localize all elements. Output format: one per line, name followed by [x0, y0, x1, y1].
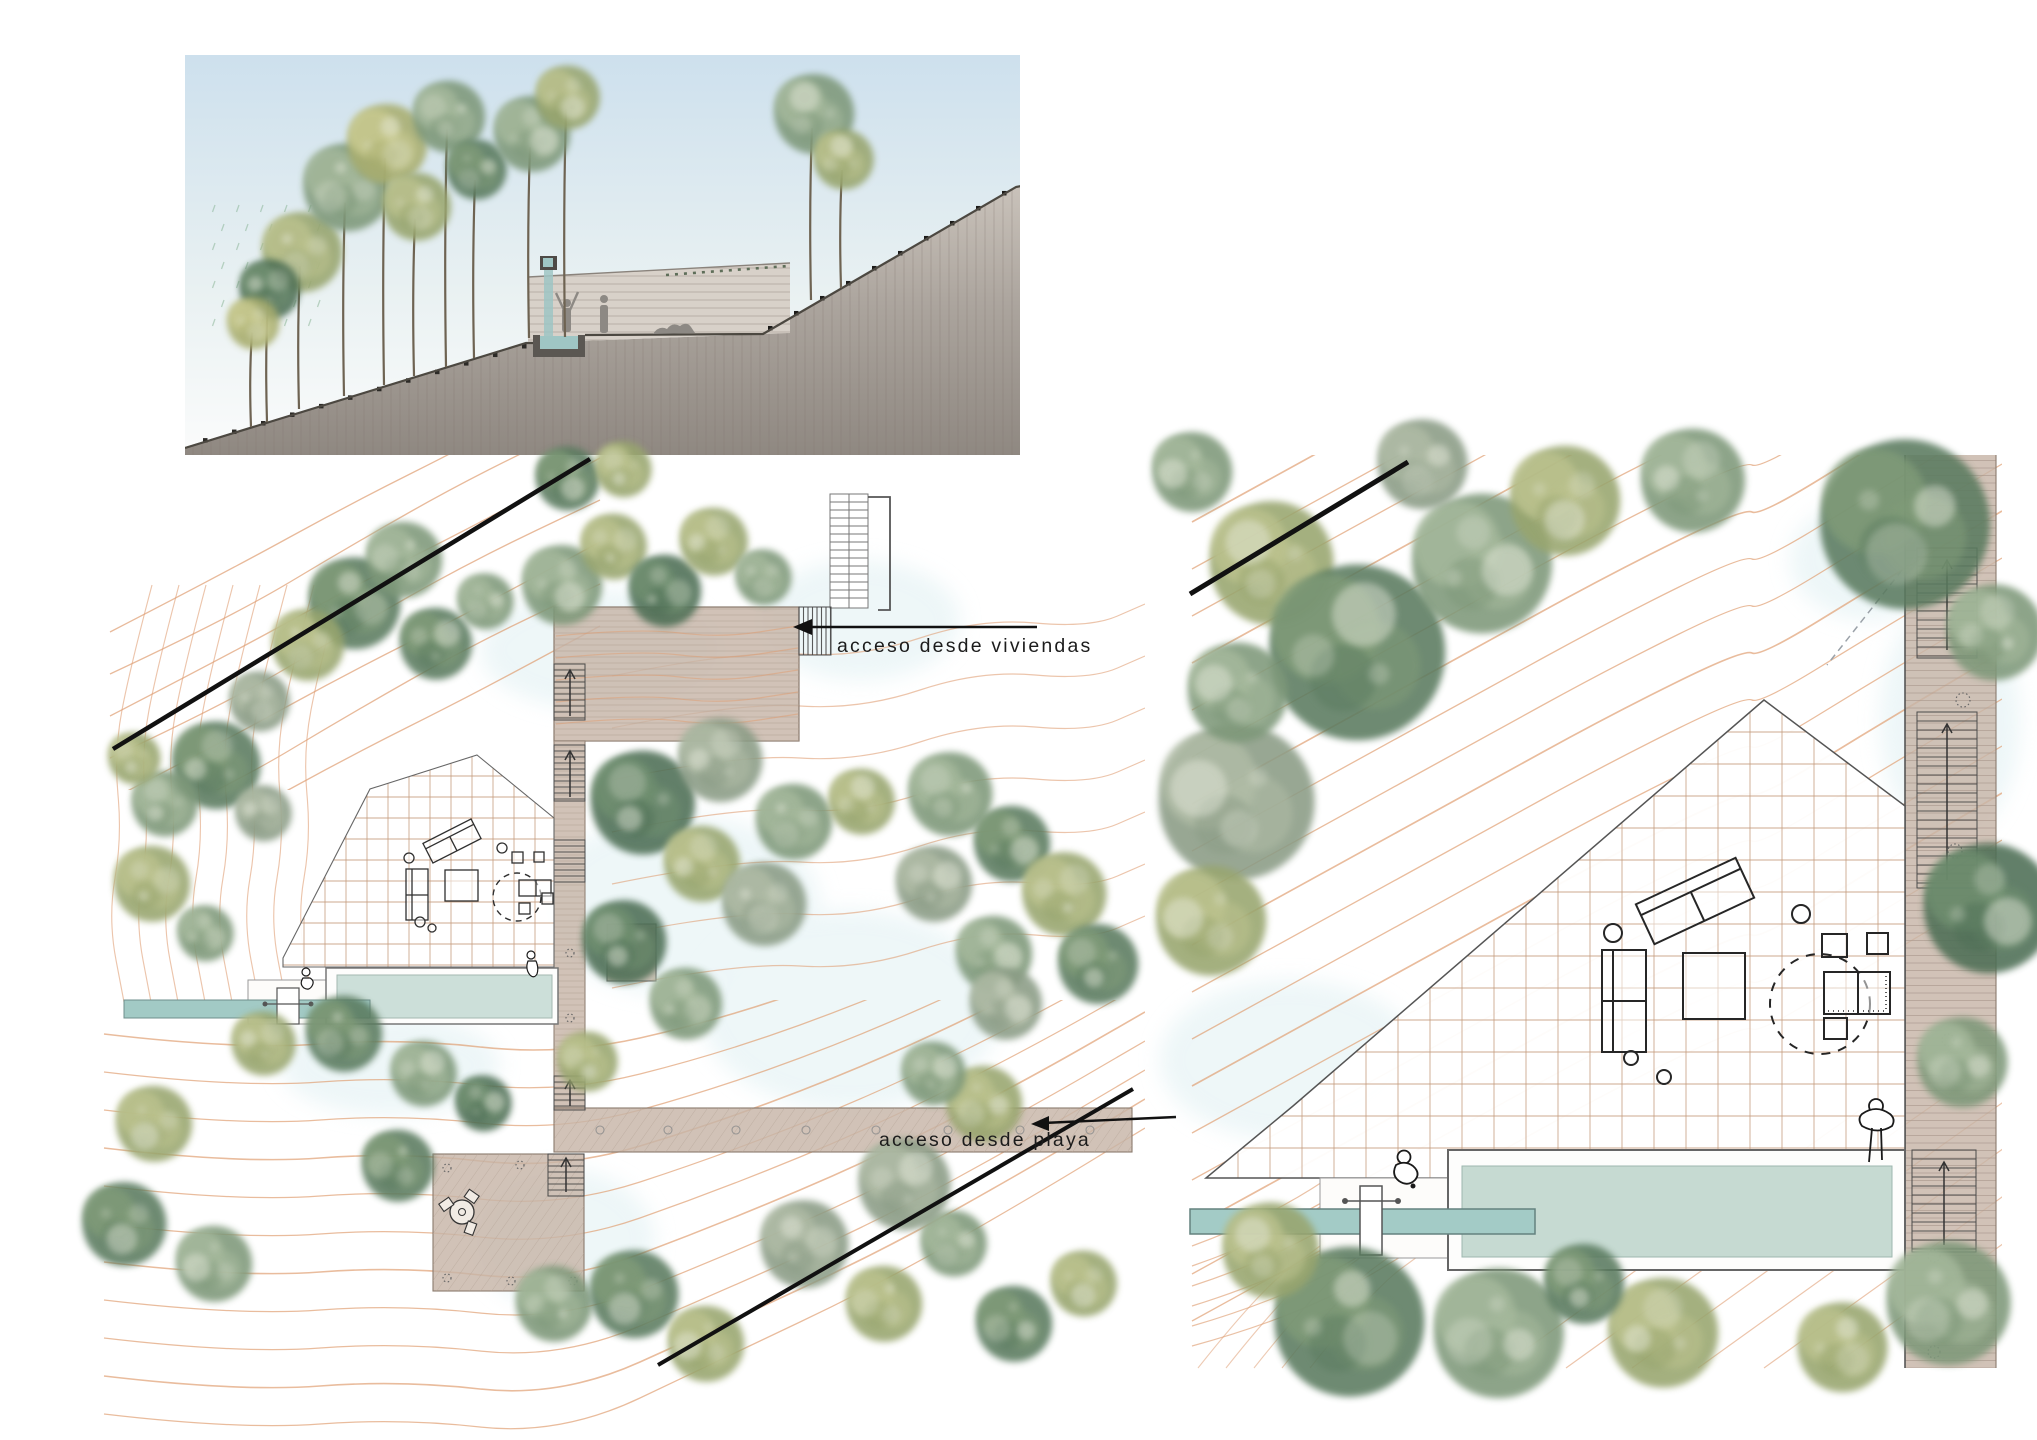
boundary-line-upper — [113, 459, 590, 749]
tree — [383, 173, 451, 241]
tree — [109, 732, 161, 784]
tree — [1152, 432, 1232, 512]
tree — [458, 573, 514, 629]
tree — [896, 846, 972, 922]
tree — [400, 608, 472, 680]
tree — [1223, 1202, 1319, 1298]
chair — [519, 903, 530, 914]
chair — [512, 852, 523, 863]
chair — [534, 852, 544, 862]
tree — [756, 784, 832, 860]
tree — [650, 968, 722, 1040]
side-table — [428, 924, 436, 932]
tree — [114, 846, 190, 922]
tree — [1023, 852, 1107, 936]
tree — [1641, 429, 1745, 533]
tree — [1378, 419, 1468, 509]
side-table — [1792, 905, 1810, 923]
tree — [306, 996, 382, 1072]
sofa-straight — [1602, 950, 1646, 1052]
tree — [176, 1226, 252, 1302]
person-crouching — [1398, 1151, 1411, 1164]
side-table — [497, 843, 507, 853]
tree — [1188, 643, 1288, 743]
tree — [583, 900, 667, 984]
tree — [232, 1012, 296, 1076]
label-access-viviendas: acceso desde viviendas — [837, 635, 1092, 657]
tree — [723, 862, 807, 946]
side-table — [1657, 1070, 1671, 1084]
tree — [859, 1138, 951, 1230]
tree — [829, 769, 895, 835]
side-table — [1604, 924, 1622, 942]
tree — [976, 1286, 1052, 1362]
site-plan-panel: acceso desde viviendas acceso desde play… — [83, 374, 1176, 1429]
tree — [1510, 446, 1620, 556]
tree — [736, 549, 792, 605]
tree — [1798, 1302, 1888, 1392]
tree — [516, 1266, 592, 1342]
side-table — [404, 853, 414, 863]
tree — [1544, 1244, 1624, 1324]
tree — [902, 1042, 966, 1106]
tree — [1159, 724, 1315, 880]
tree — [236, 785, 292, 841]
tree — [536, 447, 600, 511]
tree — [228, 297, 280, 349]
tree — [596, 441, 652, 497]
tree — [230, 672, 290, 732]
tree — [761, 1200, 849, 1288]
tree — [1051, 1251, 1117, 1317]
tree — [1434, 1268, 1564, 1398]
tree — [814, 130, 874, 190]
tree — [1608, 1278, 1718, 1388]
tree — [591, 1250, 679, 1338]
tree — [970, 968, 1042, 1040]
table-square — [1683, 953, 1745, 1019]
chair — [1867, 933, 1888, 954]
chair — [1824, 1018, 1847, 1039]
tree — [1887, 1241, 2011, 1365]
side-table — [415, 917, 425, 927]
tree — [391, 1041, 457, 1107]
tree — [1156, 866, 1266, 976]
tree — [178, 905, 234, 961]
site-drawing: acceso desde viviendas acceso desde play… — [0, 0, 2037, 1440]
site-plan-detail-panel — [1152, 88, 2037, 1398]
chair — [542, 893, 553, 904]
tree — [536, 66, 600, 130]
tree — [83, 1182, 167, 1266]
tree — [1918, 1017, 2008, 1107]
tree — [668, 1306, 744, 1382]
section-pool-water — [540, 336, 578, 349]
section-water-cascade — [544, 262, 553, 337]
tree — [846, 1266, 922, 1342]
table-square — [445, 870, 478, 901]
plaza-terrace-detail — [1206, 700, 1905, 1178]
tree — [1820, 439, 1990, 609]
tree — [116, 1086, 192, 1162]
presentation-sheet: acceso desde viviendas acceso desde play… — [0, 0, 2037, 1440]
sofa-straight — [406, 869, 428, 920]
section-panel — [185, 55, 1021, 455]
label-access-playa: acceso desde playa — [879, 1129, 1091, 1151]
tree — [558, 1032, 618, 1092]
tree — [1058, 924, 1138, 1004]
section-water-outlet-water — [543, 258, 553, 267]
tree — [362, 1130, 434, 1202]
side-table — [1624, 1051, 1638, 1065]
tree — [456, 1075, 512, 1131]
shower-fixture — [1360, 1186, 1382, 1255]
tree — [679, 718, 763, 802]
